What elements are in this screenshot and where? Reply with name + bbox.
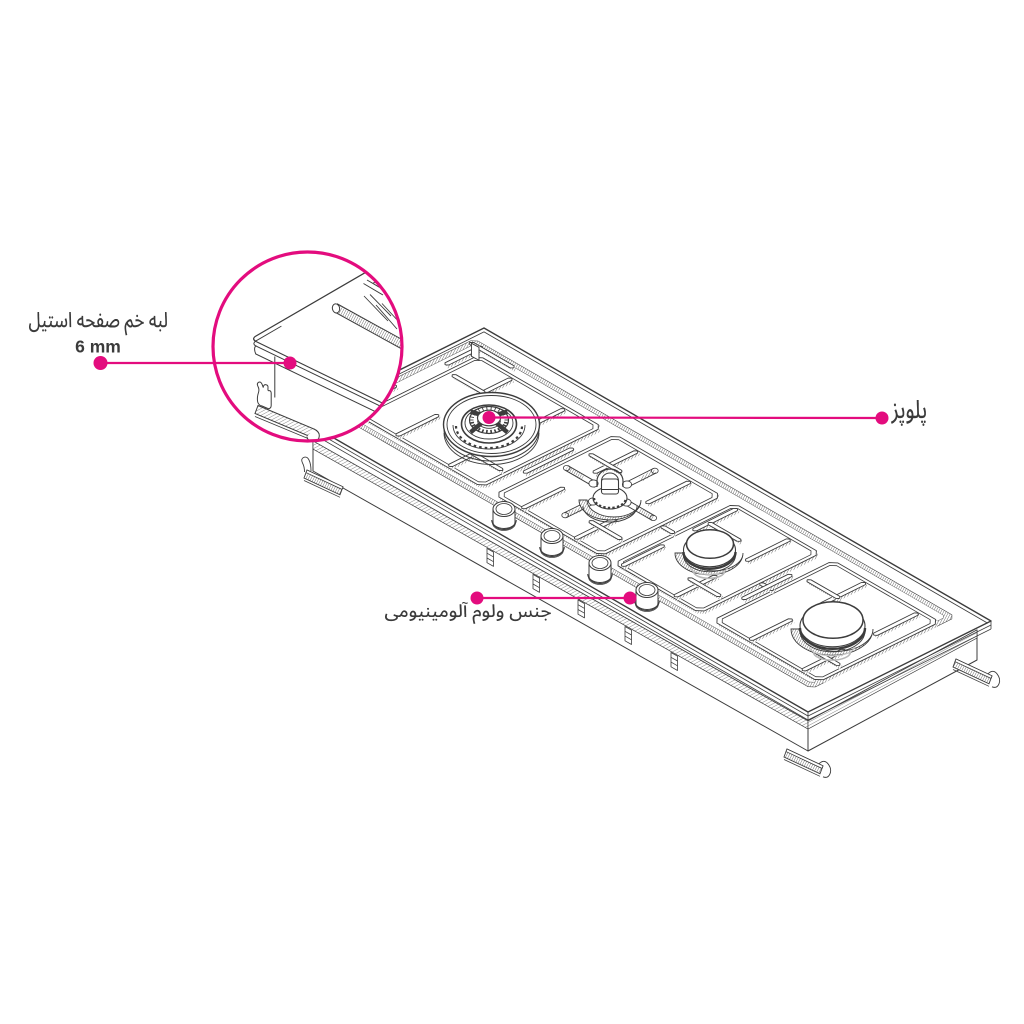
svg-text:6 mm: 6 mm	[75, 337, 121, 357]
